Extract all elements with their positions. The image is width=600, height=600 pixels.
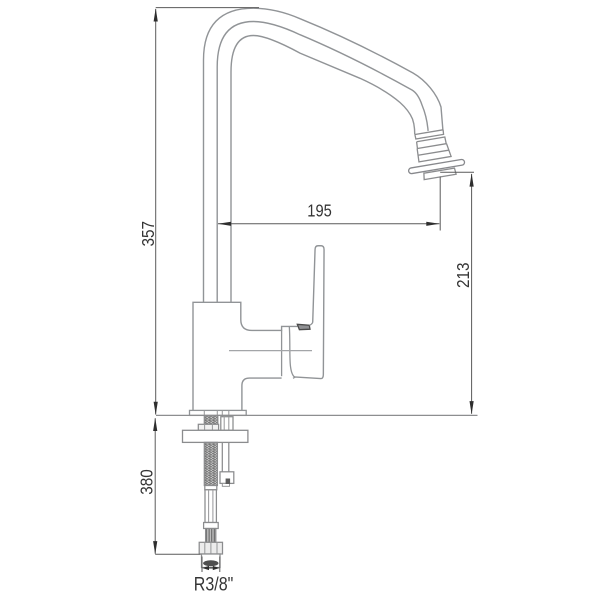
svg-text:R3/8": R3/8"	[194, 575, 234, 596]
svg-text:357: 357	[138, 221, 158, 247]
svg-text:380: 380	[137, 469, 157, 495]
svg-text:195: 195	[307, 200, 332, 220]
svg-text:213: 213	[453, 263, 473, 289]
